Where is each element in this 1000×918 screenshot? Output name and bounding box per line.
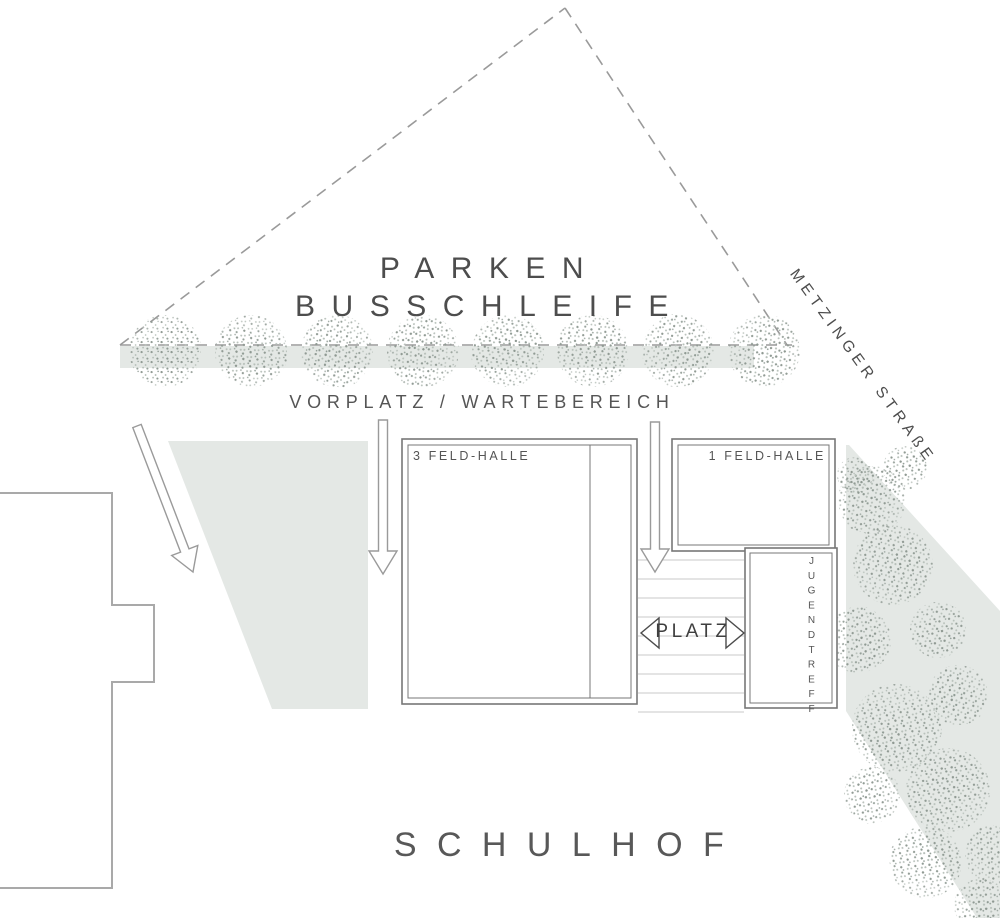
- flow-arrow-icon: [641, 422, 669, 572]
- vorplatz-label: VORPLATZ / WARTEBEREICH: [132, 392, 832, 413]
- parken-label: PARKEN: [190, 252, 790, 286]
- platz-label: PLATZ: [655, 621, 731, 643]
- busschleife-label: BUSSCHLEIFE: [190, 290, 790, 324]
- hall-3-label: 3 FELD-HALLE: [413, 449, 530, 463]
- youth-club-building: [745, 548, 837, 708]
- tree-icon: [129, 315, 201, 387]
- tree-icon: [299, 313, 376, 390]
- hall-3-building: [402, 439, 637, 704]
- forecourt-area: [168, 441, 368, 709]
- schulhof-label: SCHULHOF: [269, 826, 869, 865]
- jugendtreff-label: JUGENDTREFF: [806, 556, 817, 708]
- hall-1-label: 1 FELD-HALLE: [680, 449, 826, 463]
- school-building-outline: [0, 493, 154, 888]
- flow-arrow-icon: [369, 420, 397, 574]
